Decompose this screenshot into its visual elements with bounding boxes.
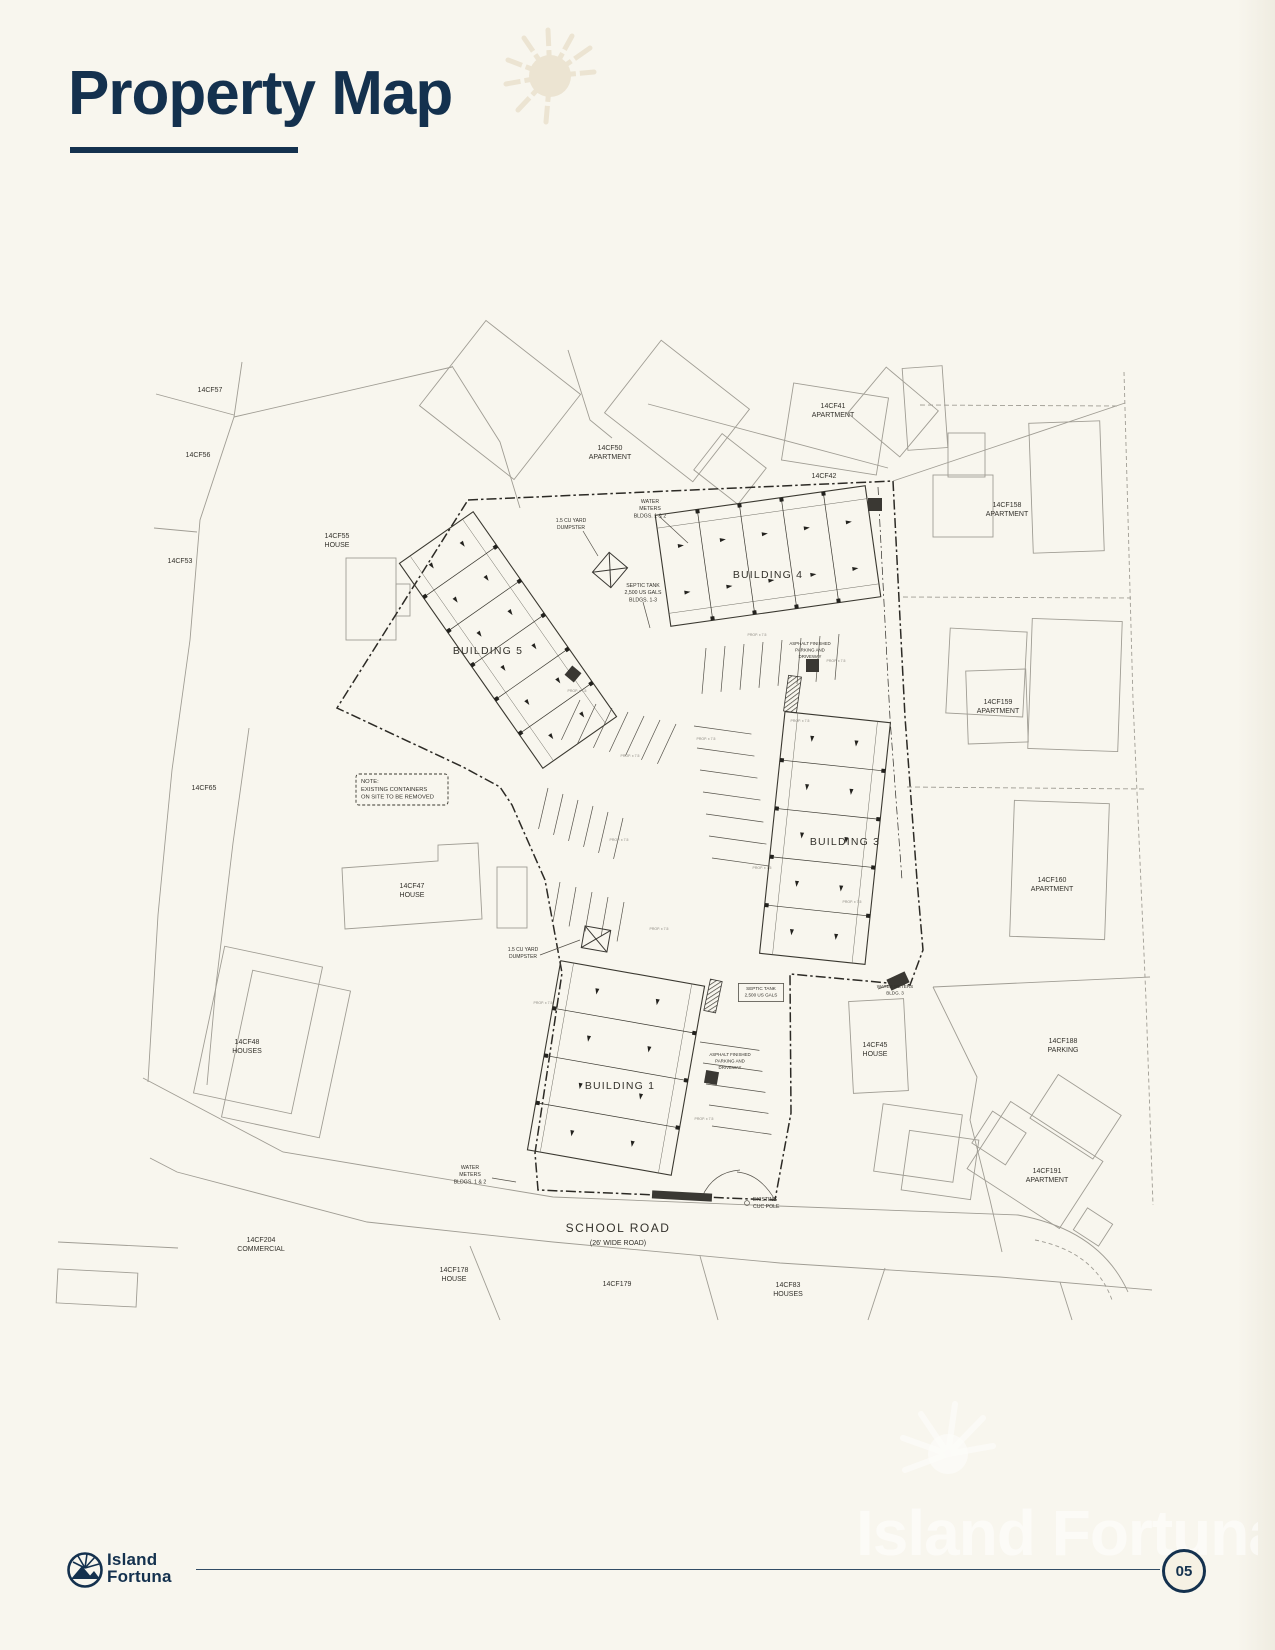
micro-dimension-label: PROP. x 7.5: [790, 719, 809, 723]
building-5-label: BUILDING 5: [453, 645, 523, 657]
parcel-label-14cf160: 14CF160APARTMENT: [1031, 877, 1074, 893]
micro-dimension-label: PROP. x 7.5: [533, 1001, 552, 1005]
pads-layer: [565, 498, 910, 1202]
sun-watermark-bottom-icon: [893, 1396, 1003, 1506]
micro-dimension-label: PROP. x 7.5: [842, 900, 861, 904]
parcel-label-14cf55: 14CF55HOUSE: [325, 533, 350, 549]
parcel-label-14cf53: 14CF53: [168, 558, 193, 565]
parcel-label-14cf204: 14CF204COMMERCIAL: [237, 1237, 285, 1253]
parcel-label-14cf56: 14CF56: [186, 452, 211, 459]
parcel-label-14cf65: 14CF65: [192, 785, 217, 792]
micro-dimension-label: PROP. x 7.5: [567, 689, 586, 693]
parcel-label-14cf57: 14CF57: [198, 387, 223, 394]
micro-dimension-label: PROP. x 7.5: [752, 866, 771, 870]
dumpster-bottom-label: 1.5 CU YARDDUMPSTER: [508, 947, 539, 960]
site-plan-map: 14CF5714CF5614CF5314CF55HOUSE14CF50APART…: [0, 0, 1275, 1650]
water-meters-bottom-label: WATERMETERSBLDGS. 1 & 2: [454, 1165, 487, 1185]
map-labels-layer: 14CF5714CF5614CF5314CF55HOUSE14CF50APART…: [168, 387, 1079, 1298]
parcel-label-14cf179: 14CF179: [603, 1281, 632, 1288]
building-1-label: BUILDING 1: [585, 1080, 655, 1092]
footer-divider: [196, 1569, 1160, 1570]
micro-dimension-label: PROP. x 7.5: [826, 659, 845, 663]
septic-tank-top-label: SEPTIC TANK2,500 US GALSBLDGS. 1-3: [625, 583, 662, 603]
neighbor-parcels: [56, 321, 1153, 1320]
micro-dimension-label: PROP. x 7.5: [696, 737, 715, 741]
asphalt-label-1: ASPHALT FINISHEDPARKING ANDDRIVEWAY: [789, 641, 830, 659]
parcel-label-14cf45: 14CF45HOUSE: [863, 1042, 888, 1058]
page-number-badge: 05: [1162, 1549, 1206, 1593]
parcel-label-14cf191: 14CF191APARTMENT: [1026, 1168, 1069, 1184]
parcel-label-14cf178: 14CF178HOUSE: [440, 1267, 469, 1283]
micro-dimension-label: PROP. x 7.5: [609, 838, 628, 842]
water-meters-top-label: WATERMETERSBLDGS. 1 & 2: [634, 499, 667, 519]
dumpster-top-label: 1.5 CU YARDDUMPSTER: [556, 518, 587, 531]
septic-tank-bottom-label: SEPTIC TANK2,500 US GALS: [745, 986, 778, 998]
micro-dimension-label: PROP. x 7.5: [747, 633, 766, 637]
parcel-label-14cf42: 14CF42: [812, 473, 837, 480]
parcel-label-14cf41: 14CF41APARTMENT: [812, 403, 855, 419]
brand-logo-icon: [66, 1551, 104, 1589]
micro-dimension-label: PROP. x 7.5: [649, 927, 668, 931]
building-3-label: BUILDING 3: [810, 836, 880, 848]
asphalt-label-2: ASPHALT FINISHEDPARKING ANDDRIVEWAY: [709, 1052, 750, 1070]
parcel-label-14cf47: 14CF47HOUSE: [400, 883, 425, 899]
building-4-label: BUILDING 4: [733, 569, 803, 581]
micro-dimension-label: PROP. x 7.5: [694, 1117, 713, 1121]
school-road-sub-label: (26' WIDE ROAD): [590, 1240, 646, 1247]
brand-line-2: Fortuna: [107, 1568, 172, 1585]
school-road-label: SCHOOL ROAD: [566, 1221, 671, 1235]
micro-dimension-label: PROP. x 7.5: [620, 754, 639, 758]
parcel-label-14cf188: 14CF188PARKING: [1048, 1038, 1079, 1054]
parcel-label-14cf50: 14CF50APARTMENT: [589, 445, 632, 461]
annotation-leaders: [492, 517, 898, 1205]
parcel-label-14cf83: 14CF83HOUSES: [773, 1282, 803, 1298]
parcel-label-14cf159: 14CF159APARTMENT: [977, 699, 1020, 715]
water-meters-bldg3-label: WATER METERSBLDG. 3: [877, 984, 914, 996]
parcel-label-14cf158: 14CF158APARTMENT: [986, 502, 1029, 518]
document-page: Property Map: [0, 0, 1275, 1650]
brand-line-1: Island: [107, 1551, 172, 1568]
brand-name: Island Fortuna: [107, 1551, 172, 1585]
building-1: [527, 961, 704, 1175]
cuc-pole-label: EXISTINGCUC POLE: [753, 1197, 780, 1210]
building-4: [655, 486, 881, 626]
